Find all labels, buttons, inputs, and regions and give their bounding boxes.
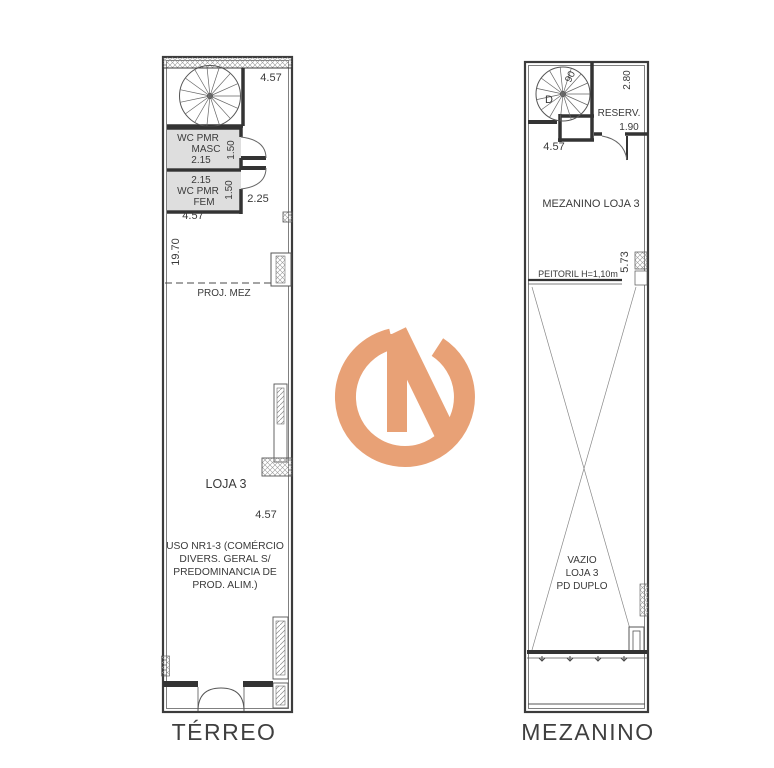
terreo-wall-block-upper — [283, 212, 292, 222]
mezanino-wall-block-lower — [640, 584, 648, 616]
mezanino-title: MEZANINO — [521, 719, 654, 745]
wc-masc-dim-width: 2.15 — [191, 155, 211, 166]
wc-masc-door-leaf — [241, 156, 266, 160]
wc-fem-dim-width: 2.15 — [191, 175, 211, 186]
terreo-window-bottom-glass — [276, 621, 285, 675]
terreo-window-sill-block — [262, 458, 292, 476]
mezanino-dim-void-height: 5.73 — [619, 251, 631, 272]
vazio-label-3: PD DUPLO — [556, 581, 607, 592]
brand-watermark-logo-icon — [345, 332, 464, 456]
terreo-wall-block-left — [162, 656, 170, 676]
mezanino-dim-width: 4.57 — [543, 141, 564, 153]
uso-note-2: DIVERS. GERAL S/ — [179, 554, 270, 565]
mezanino-room-label: MEZANINO LOJA 3 — [542, 198, 639, 210]
mezanino-stair-wall-stub — [528, 120, 557, 124]
terreo-window-bottom-2-glass — [276, 686, 285, 705]
uso-note-3: PREDOMINANCIA DE — [173, 567, 277, 578]
terreo-dim-hall: 2.25 — [247, 193, 268, 205]
mezanino-outer-wall — [525, 62, 648, 712]
wc-fem-label-2: FEM — [193, 197, 214, 208]
floorplan-canvas: 4.57 WC PMR MASC 2.15 1.50 2.15 WC PMR F… — [0, 0, 774, 768]
wc-fem-label-1: WC PMR — [177, 186, 219, 197]
reserv-dim-width: 1.90 — [619, 122, 639, 133]
terreo-top-hatched-wall — [163, 57, 292, 68]
uso-note-1: USO NR1-3 (COMÉRCIO — [166, 539, 284, 552]
wc-fem-door-leaf — [241, 166, 266, 170]
loja-label: LOJA 3 — [206, 477, 247, 491]
terreo-dim-inner-width: 4.57 — [182, 210, 203, 222]
wc-masc-label-1: WC PMR — [177, 133, 219, 144]
terreo-title: TÉRREO — [172, 719, 277, 745]
terreo-shaft-hatch — [276, 256, 285, 283]
wc-fem-dim-depth: 1.50 — [224, 180, 235, 200]
reserv-dim-height: 2.80 — [622, 70, 633, 90]
vazio-label-2: LOJA 3 — [566, 568, 599, 579]
wc-masc-label-2: MASC — [192, 144, 221, 155]
entrance-wall-left — [163, 681, 198, 687]
terreo-dim-top-width: 4.57 — [260, 72, 281, 84]
terreo-dim-mid-width: 4.57 — [255, 509, 276, 521]
terreo-window-mid-glass — [277, 388, 284, 424]
mezanino-floorplan: D 90 RESERV. 1.90 2.80 4.57 MEZANINO LOJ… — [521, 62, 654, 745]
floorplan-sheet: 4.57 WC PMR MASC 2.15 1.50 2.15 WC PMR F… — [0, 0, 774, 768]
stair-direction-label: D — [545, 94, 553, 106]
terreo-dim-length: 19.70 — [170, 238, 182, 266]
uso-note-4: PROD. ALIM.) — [192, 580, 257, 591]
mezanino-bottom-wall — [527, 650, 647, 654]
terreo-floorplan: 4.57 WC PMR MASC 2.15 1.50 2.15 WC PMR F… — [162, 57, 293, 745]
proj-mez-label: PROJ. MEZ — [197, 288, 250, 299]
reserv-label: RESERV. — [598, 108, 641, 119]
mezanino-window-upper-2 — [635, 271, 647, 285]
wc-masc-dim-depth: 1.50 — [226, 140, 237, 160]
entrance-wall-right — [243, 681, 273, 687]
mezanino-corner-element-inner — [633, 631, 640, 651]
vazio-label-1: VAZIO — [567, 555, 596, 566]
mezanino-window-upper — [635, 252, 647, 269]
peitoril-label: PEITORIL H=1,10m — [538, 269, 618, 279]
